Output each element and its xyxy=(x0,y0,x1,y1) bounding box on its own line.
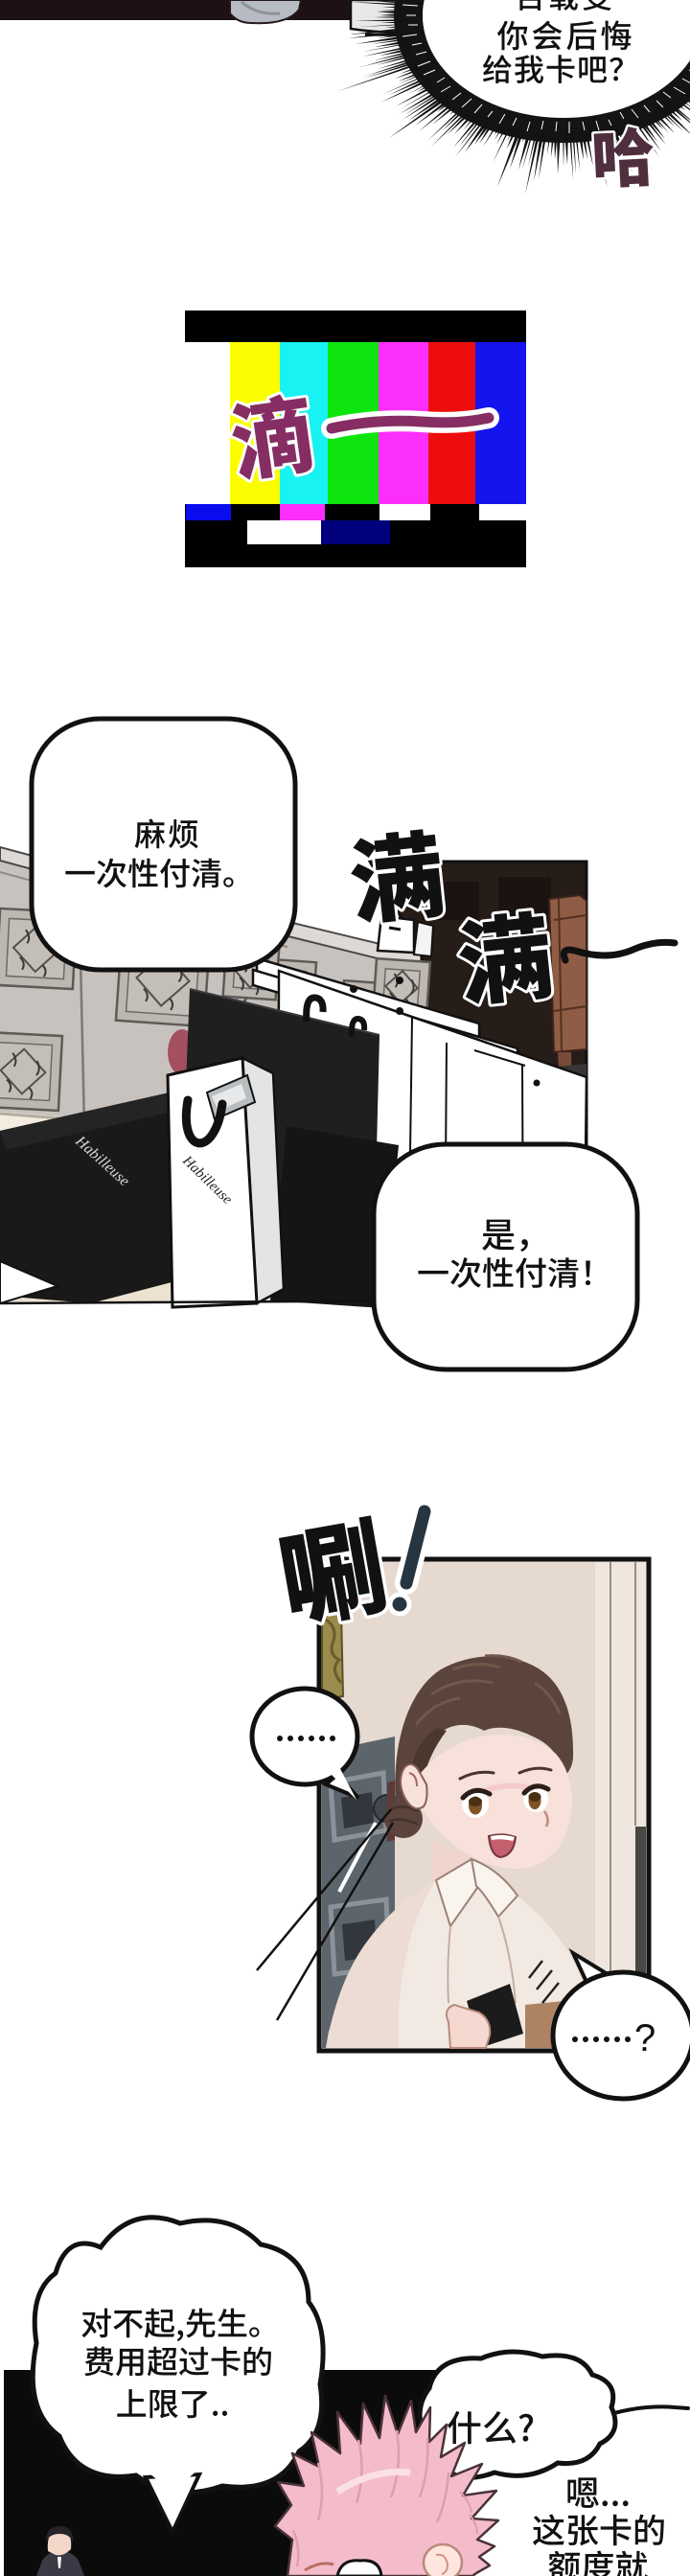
svg-text:?: ? xyxy=(634,2017,655,2059)
